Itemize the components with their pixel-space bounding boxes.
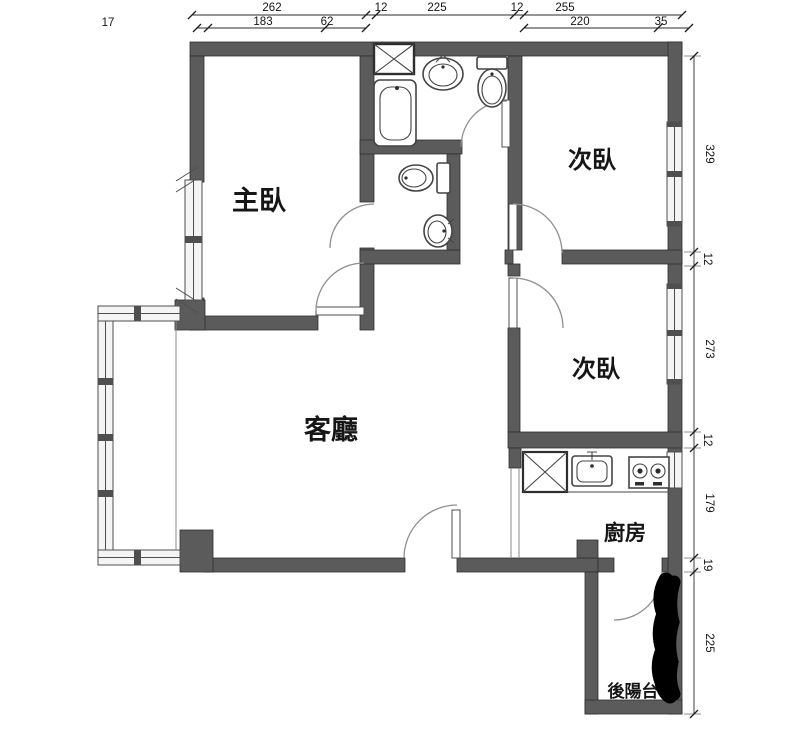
dimension-label: 35: [655, 16, 668, 28]
dimension-label: 19: [701, 559, 713, 572]
wall: [360, 250, 460, 264]
wall: [505, 250, 513, 264]
door-ensuite-bath: [330, 204, 374, 248]
wall: [360, 56, 374, 202]
dimension-label: 12: [511, 2, 524, 14]
window-bedroom1-east: [667, 122, 682, 226]
wall: [190, 42, 682, 56]
wall: [180, 530, 213, 572]
wall: [508, 432, 682, 448]
wall: [509, 448, 521, 468]
dimension-label: 225: [427, 2, 446, 14]
black-marker-scribble: [659, 580, 674, 696]
kitchen-sink-icon: [572, 452, 612, 486]
wall: [562, 250, 682, 264]
dimension-label: 179: [703, 493, 715, 512]
wall: [598, 558, 614, 572]
room-label-kitchen: 廚房: [604, 521, 646, 545]
x-box-cabinet-icon: [523, 452, 567, 492]
wall: [190, 56, 204, 182]
kitchen-partition: [511, 468, 519, 558]
door-bedroom1: [509, 204, 562, 253]
bathtub-icon: [374, 80, 416, 146]
room-label-back-balcony: 後陽台: [608, 681, 659, 701]
room-label-master-bedroom: 主臥: [232, 186, 286, 216]
dimension-label: 329: [703, 144, 715, 163]
floor-plan-svg: 主臥 次臥 次臥 客廳 廚房 後陽台 262 12 225 12 255 17 …: [0, 0, 800, 734]
toilet-icon: [477, 57, 507, 107]
window-bay-bottom: [98, 550, 180, 565]
wall: [577, 540, 598, 558]
dimension-label: 262: [262, 2, 281, 14]
room-label-living-room: 客廳: [304, 414, 358, 445]
dimension-label: 255: [555, 2, 574, 14]
window-bay-left: [98, 308, 113, 564]
wall: [662, 558, 668, 572]
round-washbasin-icon: [423, 55, 463, 90]
door-master: [316, 263, 364, 315]
dimension-label: 62: [321, 16, 334, 28]
door-bedroom2: [509, 278, 563, 328]
wall: [508, 264, 520, 276]
window-master-west: [176, 167, 202, 313]
room-label-bedroom-top: 次臥: [568, 147, 617, 174]
two-burner-stove-icon: [629, 457, 669, 488]
dimension-label: 183: [253, 16, 272, 28]
door-main-bath: [461, 100, 510, 147]
room-label-bedroom-mid: 次臥: [572, 356, 621, 383]
window-bay-top: [98, 306, 180, 321]
toilet-icon: [399, 163, 450, 193]
window-bedroom2-east: [667, 284, 682, 384]
wall: [204, 558, 405, 572]
wall: [457, 558, 598, 572]
wall: [190, 316, 318, 330]
x-box-shaft-icon: [374, 44, 414, 74]
wall: [508, 328, 520, 432]
dimension-label: 225: [703, 633, 715, 652]
dimension-label: 17: [102, 17, 115, 29]
dimension-label: 12: [375, 2, 388, 14]
dimension-label: 273: [703, 339, 715, 358]
door-living-room: [404, 505, 460, 558]
floor-plan-page: 主臥 次臥 次臥 客廳 廚房 後陽台 262 12 225 12 255 17 …: [0, 0, 800, 734]
dimension-label: 12: [701, 434, 713, 447]
dimension-label: 220: [570, 16, 589, 28]
dimension-label: 12: [701, 253, 713, 266]
wall: [585, 572, 598, 714]
windows: [98, 122, 682, 565]
